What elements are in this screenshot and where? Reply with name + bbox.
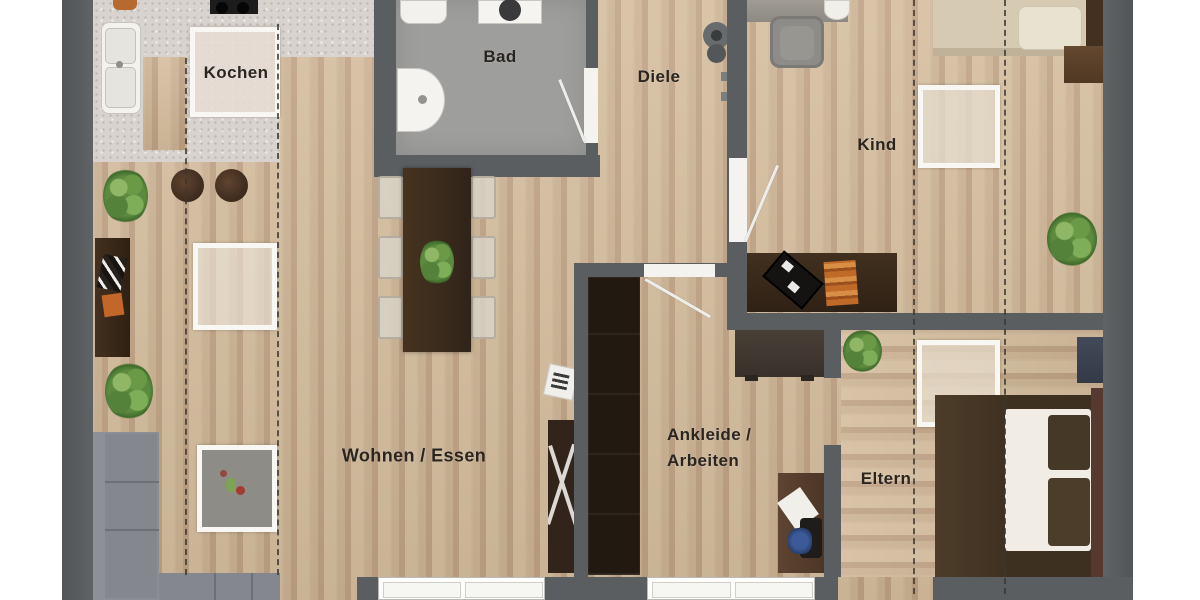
plant-wohnen-top — [103, 168, 148, 224]
ankleide-dresser — [735, 325, 828, 377]
coffee-table-flowers-red — [220, 470, 227, 477]
outer-wall-right — [1103, 0, 1133, 600]
washing-machine-door — [499, 0, 521, 21]
office-chair-kind — [770, 16, 824, 68]
cooktop-burner — [216, 2, 228, 14]
room-label-ankleide-line2: Arbeiten — [667, 451, 739, 471]
sideboard-left — [95, 238, 130, 357]
kitchen-floor-pocket — [143, 57, 187, 150]
room-label-kochen: Kochen — [204, 63, 269, 83]
rug-kind — [918, 85, 1000, 168]
coffee-table — [197, 445, 277, 532]
eltern-dresser — [1077, 337, 1103, 383]
bath-wall-right-upper — [586, 0, 598, 68]
section-line — [277, 24, 279, 575]
dining-table-plant — [420, 238, 454, 286]
room-label-wohnen-essen: Wohnen / Essen — [342, 446, 486, 467]
dresser-foot — [801, 375, 814, 381]
dining-chair — [378, 236, 403, 279]
kind-sideboard — [745, 253, 897, 312]
sofa-backrest — [93, 432, 105, 600]
plant-kind — [1047, 212, 1097, 266]
dresser-foot — [745, 375, 758, 381]
window-pane — [735, 582, 813, 598]
sink-faucet — [116, 61, 123, 68]
kitchen-decor — [113, 0, 137, 10]
wall-kind-eltern — [727, 313, 1103, 330]
room-label-ankleide-line1: Ankleide / — [667, 425, 751, 445]
wall-ankleide-eltern-upper — [824, 330, 841, 378]
magazine-print — [551, 371, 570, 390]
wall-wohnen-ankleide — [574, 263, 588, 577]
sideboard-books — [97, 254, 128, 292]
window-pane — [383, 582, 461, 598]
outer-wall-bottom-c — [815, 577, 838, 600]
room-label-diele: Diele — [638, 67, 681, 87]
sofa-chaise — [159, 573, 280, 600]
room-label-kind: Kind — [857, 135, 896, 155]
room-label-bad: Bad — [483, 47, 516, 67]
chair-seat — [780, 26, 814, 60]
orange-book — [824, 260, 859, 306]
window-ankleide — [647, 577, 815, 600]
bath-door-opening — [584, 68, 598, 143]
dining-chair — [471, 236, 496, 279]
ankleide-door-opening — [644, 264, 715, 277]
sink-basin-top — [105, 28, 136, 64]
tv — [762, 250, 824, 309]
section-line — [913, 0, 915, 594]
rug-wohnen — [193, 243, 277, 330]
tv-glint — [787, 281, 800, 294]
eltern-duvet — [1048, 415, 1090, 470]
floor-plan: Kochen Bad Diele — [0, 0, 1200, 600]
window-wohnen — [378, 577, 545, 600]
plant-wohnen-bottom — [105, 362, 153, 420]
window-pane — [465, 582, 543, 598]
outer-wall-bottom-a — [357, 577, 378, 600]
outer-wall-bottom-b — [545, 577, 647, 600]
kind-desk-papers — [824, 0, 850, 20]
plant-eltern — [843, 330, 882, 372]
kind-bed-headboard — [1086, 0, 1103, 48]
eltern-duvet — [1048, 478, 1090, 546]
coffee-table-flowers — [226, 478, 236, 492]
outer-wall-bottom-d — [933, 577, 1133, 600]
bath-wall-right-lower — [586, 143, 598, 157]
office-chair-ankleide — [737, 495, 781, 558]
kitchen-counter-top-band — [280, 0, 374, 57]
sink-basin-bottom — [105, 67, 136, 108]
cooktop — [210, 0, 258, 14]
desk-ankleide — [778, 473, 828, 573]
section-line — [1004, 0, 1006, 594]
dining-chair — [471, 176, 496, 219]
dining-chair — [378, 176, 403, 219]
sideboard-decor-orange — [102, 293, 125, 318]
kind-door-opening — [729, 158, 747, 242]
toilet — [400, 0, 447, 24]
cooktop-burner — [237, 2, 249, 14]
window-pane — [652, 582, 731, 598]
dining-chair — [471, 296, 496, 339]
sofa-seam — [214, 573, 216, 600]
bar-stool — [171, 169, 204, 202]
tv-glint — [781, 260, 794, 273]
washbasin-drain — [418, 95, 427, 104]
sofa-seam — [251, 573, 253, 600]
section-line — [185, 58, 187, 575]
wardrobe — [588, 277, 640, 575]
desk-blue-item — [788, 528, 812, 554]
dining-chair — [378, 296, 403, 339]
bar-stool — [215, 169, 248, 202]
wall-ankleide-eltern-lower — [824, 445, 841, 577]
sofa — [93, 432, 159, 600]
bath-wall-left — [374, 0, 396, 177]
kitchen-sink — [101, 22, 141, 114]
kind-nightstand — [1064, 46, 1103, 83]
vacuum-base — [707, 44, 726, 63]
eltern-bed — [935, 395, 1103, 577]
room-label-eltern: Eltern — [861, 469, 912, 489]
washing-machine — [478, 0, 542, 24]
outer-wall-left — [62, 0, 93, 600]
coffee-table-flowers-red — [236, 486, 245, 495]
kind-bed-pillow — [1018, 6, 1082, 50]
